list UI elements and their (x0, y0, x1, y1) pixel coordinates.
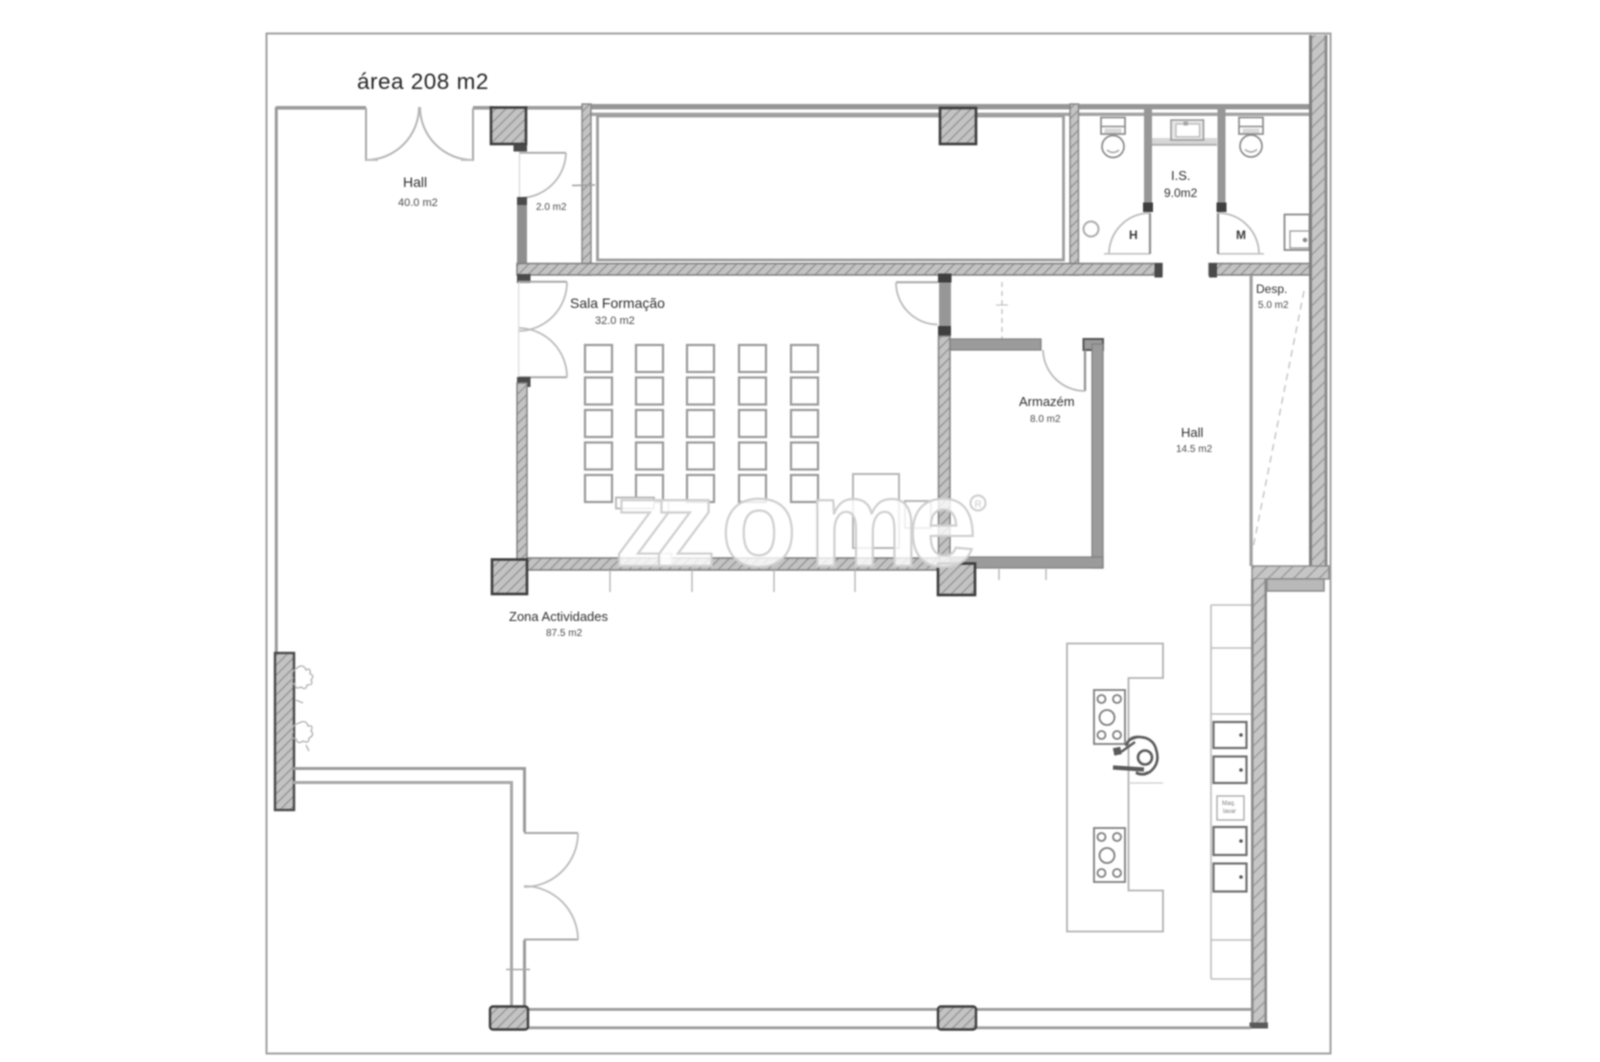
svg-text:zzome: zzome (614, 455, 977, 593)
svg-text:5.0 m2: 5.0 m2 (1258, 300, 1289, 311)
svg-text:40.0 m2: 40.0 m2 (398, 197, 438, 209)
svg-text:Zona Actividades: Zona Actividades (509, 609, 609, 624)
svg-text:Armazém: Armazém (1019, 394, 1075, 409)
svg-text:Hall: Hall (1181, 425, 1204, 440)
svg-text:M: M (1236, 228, 1246, 242)
svg-text:14.5 m2: 14.5 m2 (1176, 444, 1213, 455)
svg-text:8.0 m2: 8.0 m2 (1030, 414, 1061, 425)
svg-text:87.5 m2: 87.5 m2 (546, 628, 583, 639)
svg-text:Desp.: Desp. (1256, 282, 1287, 296)
svg-text:área 208 m2: área 208 m2 (357, 69, 489, 94)
svg-text:Sala Formação: Sala Formação (570, 295, 665, 311)
svg-text:Hall: Hall (403, 174, 427, 190)
svg-text:32.0 m2: 32.0 m2 (595, 315, 635, 327)
svg-text:2.0 m2: 2.0 m2 (536, 202, 567, 213)
svg-text:Maq.: Maq. (1222, 801, 1236, 807)
svg-text:I.S.: I.S. (1171, 168, 1191, 183)
svg-text:9.0m2: 9.0m2 (1164, 186, 1198, 200)
svg-text:lavar: lavar (1223, 809, 1236, 815)
svg-text:H: H (1129, 228, 1138, 242)
svg-text:R: R (975, 500, 982, 511)
